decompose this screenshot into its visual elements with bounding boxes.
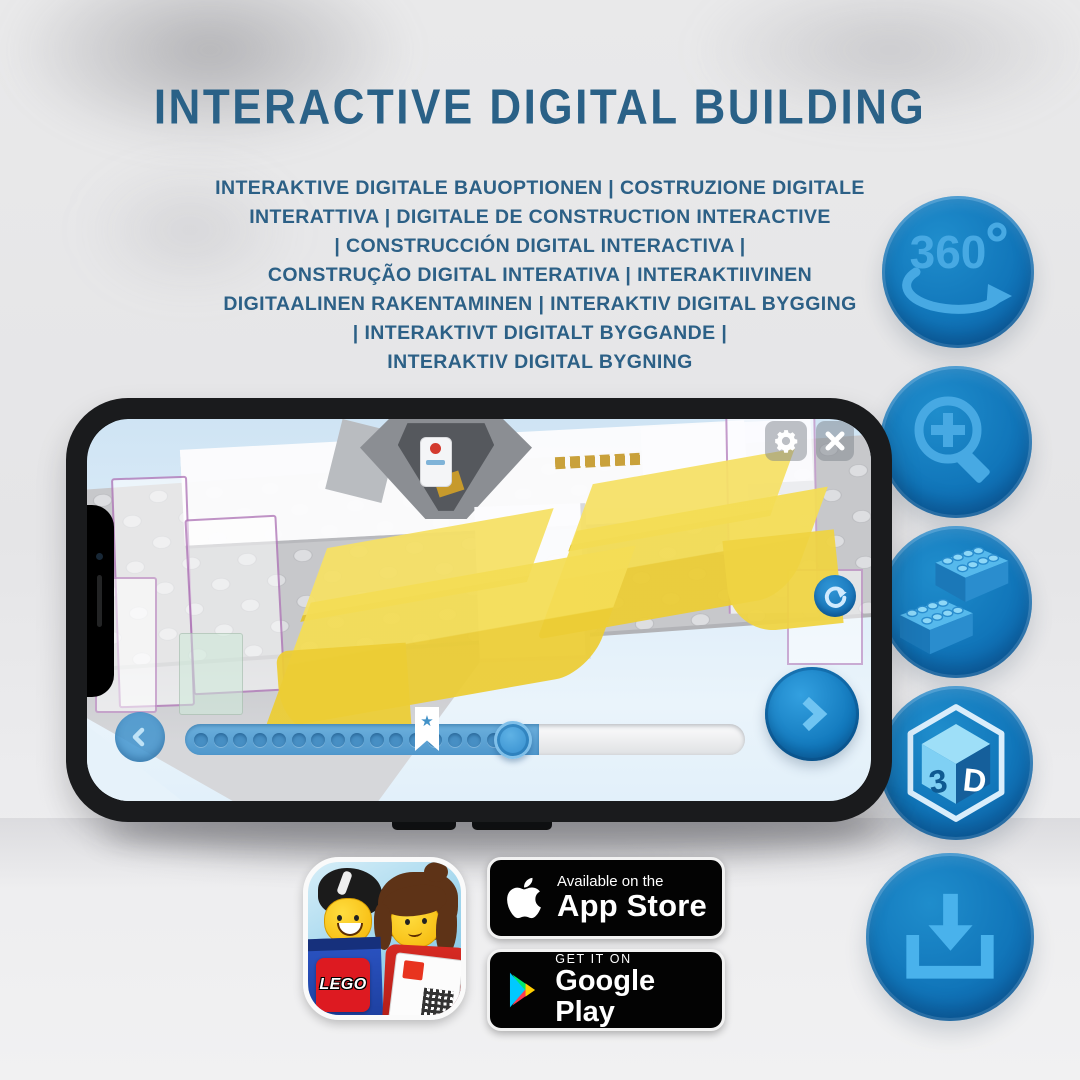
subtitle-line: INTERAKTIVE DIGITALE BAUOPTIONEN | COSTR… [25, 174, 1055, 203]
progress-step-dot [311, 733, 325, 747]
progress-step-dot [253, 733, 267, 747]
zoom-in-icon [904, 390, 1008, 494]
download-icon [896, 886, 1004, 988]
decorated-brick-stripe [426, 460, 445, 465]
progress-step-dot [233, 733, 247, 747]
cube-right-label: D [961, 761, 988, 799]
card-red-square [402, 960, 424, 980]
qr-code [421, 988, 454, 1020]
build-progress-bar[interactable] [185, 724, 745, 755]
feature-360-rotation: 360 [882, 196, 1034, 348]
eye [354, 915, 359, 921]
progress-step-dot [448, 733, 462, 747]
app-screen: ★ [87, 419, 871, 801]
gear-icon [773, 428, 799, 454]
google-play-label: Google Play [555, 966, 708, 1027]
lego-wordmark: LEGO [319, 976, 366, 994]
promo-page: INTERACTIVE DIGITAL BUILDING INTERAKTIVE… [0, 0, 1080, 1080]
progress-step-dot [272, 733, 286, 747]
apple-logo-icon [504, 875, 544, 921]
ghost-brick-mint [179, 633, 243, 715]
app-store-label: App Store [557, 890, 707, 923]
collar [307, 937, 381, 952]
lego-logo: LEGO [316, 958, 370, 1012]
previous-step-button[interactable] [115, 712, 165, 762]
progress-step-dot [350, 733, 364, 747]
eye [422, 918, 427, 924]
progress-step-dot [292, 733, 306, 747]
google-play-badge[interactable]: GET IT ON Google Play [487, 949, 725, 1031]
progress-step-dot [389, 733, 403, 747]
minifig-girl-bun [424, 862, 448, 882]
smirk [408, 927, 423, 937]
feature-zoom [880, 366, 1032, 518]
earpiece-speaker [97, 575, 102, 627]
lego-builder-app-icon[interactable]: LEGO [303, 857, 466, 1020]
progress-step-dot [467, 733, 481, 747]
progress-dots [194, 733, 520, 747]
phone-side-button [472, 821, 552, 830]
rotate-icon [821, 582, 849, 610]
360-label: 360 [910, 226, 987, 278]
subtitle-line: INTERAKTIV DIGITAL BYGNING [25, 348, 1055, 377]
rotate-view-button[interactable] [814, 575, 856, 617]
page-title: INTERACTIVE DIGITAL BUILDING [4, 80, 1076, 136]
progress-step-dot [370, 733, 384, 747]
eye [405, 919, 410, 925]
google-play-logo-icon [504, 967, 542, 1013]
3d-cube-icon: 3 D [899, 701, 1013, 825]
app-store-badge[interactable]: Available on the App Store [487, 857, 725, 939]
feature-download [866, 853, 1034, 1021]
phone-side-button [392, 821, 456, 830]
smartphone: ★ [66, 398, 892, 822]
degree-symbol-icon [990, 225, 1004, 239]
smile [337, 923, 363, 936]
progress-step-dot [331, 733, 345, 747]
close-button[interactable] [816, 421, 854, 461]
settings-button[interactable] [765, 421, 807, 461]
eye [337, 915, 342, 921]
chevron-right-icon [791, 693, 833, 735]
progress-step-dot [194, 733, 208, 747]
chevron-left-icon [128, 725, 152, 749]
phone-notch [87, 505, 114, 697]
360-rotation-icon: 360 [898, 216, 1018, 328]
decorated-brick [420, 437, 452, 487]
decorated-brick-dot [430, 443, 441, 454]
feature-3d-view: 3 D [879, 686, 1033, 840]
close-icon [823, 429, 847, 453]
front-camera [96, 553, 103, 560]
bricks-icon [900, 543, 1012, 661]
progress-step-dot [214, 733, 228, 747]
next-step-button[interactable] [765, 667, 859, 761]
instruction-card [388, 952, 464, 1020]
progress-slider-handle[interactable] [494, 721, 532, 759]
feature-bricks [880, 526, 1032, 678]
